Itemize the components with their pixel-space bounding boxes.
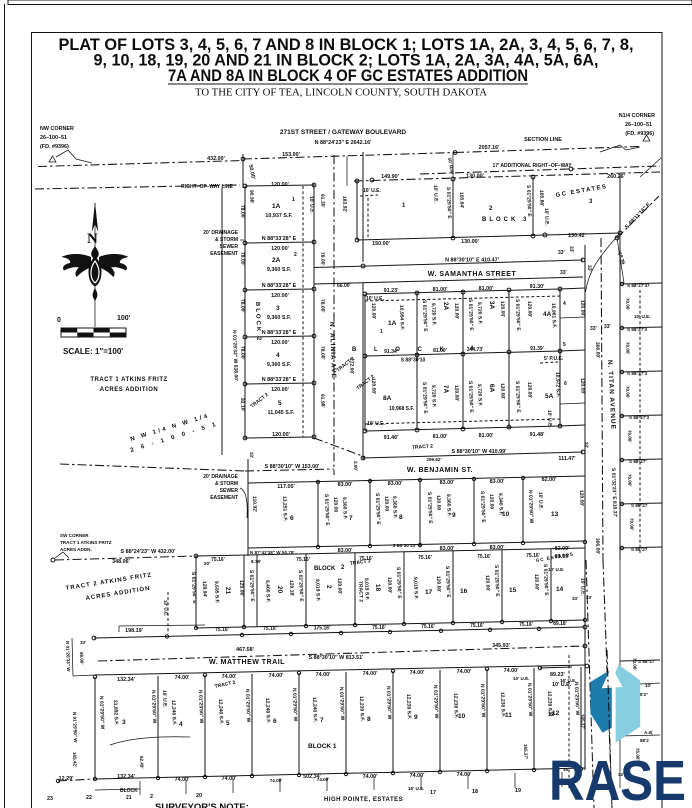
- svg-text:78.00': 78.00': [319, 299, 325, 313]
- svg-text:7: 7: [349, 515, 353, 522]
- svg-text:149.90': 149.90': [381, 174, 399, 180]
- svg-text:ACRES ADDITION: ACRES ADDITION: [85, 586, 151, 602]
- svg-text:S 88°27'37: S 88°27'37: [627, 283, 650, 288]
- svg-text:129.18': 129.18': [288, 580, 295, 597]
- svg-text:N 01°29'50" W: N 01°29'50" W: [98, 696, 105, 730]
- svg-text:TRACT 2: TRACT 2: [349, 558, 371, 567]
- svg-text:26–100–51: 26–100–51: [625, 122, 652, 128]
- svg-text:7A: 7A: [442, 385, 449, 394]
- svg-text:20' DRAINAGE: 20' DRAINAGE: [203, 230, 238, 236]
- svg-text:9,019 S.F.: 9,019 S.F.: [412, 577, 419, 600]
- svg-text:A.0(: A.0(: [644, 730, 653, 735]
- svg-text:81.00': 81.00': [433, 287, 448, 293]
- svg-text:10' U.E.: 10' U.E.: [546, 410, 553, 429]
- svg-text:ACRES ADDITION: ACRES ADDITION: [100, 387, 158, 393]
- svg-text:B L O C K: B L O C K: [352, 347, 452, 353]
- svg-text:SURVEYOR'S NOTE:: SURVEYOR'S NOTE:: [155, 802, 249, 808]
- svg-text:9,720 S.F.: 9,720 S.F.: [430, 303, 437, 326]
- svg-text:9,019 S.F.: 9,019 S.F.: [363, 578, 370, 601]
- svg-text:120.00': 120.00': [272, 432, 290, 438]
- svg-text:10' U.E.: 10' U.E.: [367, 421, 385, 427]
- svg-text:RIGHT–OF–WAY LINE: RIGHT–OF–WAY LINE: [181, 184, 233, 190]
- svg-text:17: 17: [430, 790, 436, 796]
- svg-text:BLOCK 1: BLOCK 1: [308, 743, 337, 750]
- svg-text:6: 6: [564, 381, 567, 387]
- svg-text:14: 14: [556, 586, 564, 593]
- svg-text:S 01°29'50" E: S 01°29'50" E: [374, 493, 381, 526]
- svg-text:10': 10': [645, 683, 651, 688]
- svg-text:23: 23: [47, 796, 53, 802]
- svg-text:91.30': 91.30': [530, 284, 545, 290]
- svg-text:33': 33': [249, 452, 254, 458]
- svg-text:432.00': 432.00': [207, 156, 225, 162]
- svg-text:5: 5: [278, 400, 282, 407]
- svg-text:N 01°29'50" W: N 01°29'50" W: [479, 684, 486, 718]
- svg-text:S 01°29'50" E: S 01°29'50" E: [395, 567, 402, 600]
- svg-text:5: 5: [226, 720, 230, 727]
- svg-text:5A: 5A: [545, 393, 554, 400]
- svg-text:91.23': 91.23': [384, 288, 399, 294]
- svg-text:70.00': 70.00': [625, 386, 630, 399]
- svg-text:74.00': 74.00': [410, 670, 425, 676]
- svg-text:6: 6: [290, 515, 294, 522]
- svg-text:62.49': 62.49': [139, 756, 144, 769]
- svg-text:75.16': 75.16': [372, 625, 386, 631]
- svg-text:70.00': 70.00': [627, 430, 632, 443]
- svg-text:74.00': 74.00': [317, 777, 330, 782]
- svg-text:NW CORNER: NW CORNER: [40, 126, 74, 132]
- svg-text:S 88°24'23" W 432.00': S 88°24'23" W 432.00': [121, 549, 176, 555]
- svg-text:1A: 1A: [272, 203, 281, 210]
- svg-text:TRACT 2: TRACT 2: [357, 581, 364, 603]
- svg-text:70.00': 70.00': [632, 658, 637, 671]
- svg-text:467.58': 467.58': [236, 647, 254, 653]
- svg-text:33': 33': [560, 270, 567, 276]
- svg-text:78.00': 78.00': [239, 299, 245, 313]
- svg-text:10' U.E.: 10' U.E.: [366, 296, 384, 302]
- svg-text:6A: 6A: [488, 384, 495, 393]
- svg-text:74.00': 74.00': [175, 675, 190, 681]
- svg-text:120.00: 120.00: [435, 495, 442, 511]
- svg-text:S 01°29'50" E: S 01°29'50" E: [525, 185, 532, 218]
- svg-text:74.00': 74.00': [457, 772, 472, 778]
- svg-text:9,720 S.F.: 9,720 S.F.: [476, 302, 483, 325]
- svg-text:10' U.E.: 10' U.E.: [548, 567, 564, 572]
- svg-text:& STORM: & STORM: [215, 237, 238, 243]
- svg-text:83.00': 83.00': [440, 480, 455, 486]
- svg-text:10' U.E.: 10' U.E.: [308, 196, 315, 215]
- svg-text:S 88°27: S 88°27: [631, 503, 648, 508]
- svg-text:10,937 S.F.: 10,937 S.F.: [265, 213, 293, 219]
- svg-text:120.00': 120.00': [336, 578, 343, 595]
- svg-text:S 01°29'50" E: S 01°29'50" E: [479, 491, 486, 524]
- svg-text:9,360 S.F.: 9,360 S.F.: [445, 494, 452, 517]
- svg-text:10,954 S.F.: 10,954 S.F.: [398, 305, 405, 331]
- svg-text:10' U.E.: 10' U.E.: [363, 188, 381, 194]
- svg-text:90.98': 90.98': [248, 190, 254, 204]
- svg-text:16: 16: [460, 588, 468, 595]
- svg-text:100': 100': [117, 315, 131, 322]
- svg-text:75.16': 75.16': [421, 624, 435, 630]
- svg-text:TRACT 1 ATKINS FRITZ: TRACT 1 ATKINS FRITZ: [60, 540, 112, 545]
- svg-text:74.00': 74.00': [270, 778, 283, 783]
- svg-text:11,045 S.F.: 11,045 S.F.: [268, 410, 295, 416]
- svg-text:2A: 2A: [442, 302, 449, 311]
- svg-text:S 01°29'50" E: S 01°29'50" E: [514, 381, 521, 414]
- svg-text:120.00': 120.00': [453, 303, 460, 320]
- svg-text:5: 5: [563, 342, 566, 348]
- svg-text:75.16': 75.16': [296, 557, 310, 563]
- svg-text:75.16': 75.16': [211, 557, 225, 563]
- svg-text:120.00': 120.00': [533, 574, 540, 591]
- svg-text:16' U.E.: 16' U.E.: [161, 690, 168, 709]
- svg-text:TRACT 2: TRACT 2: [412, 444, 434, 451]
- svg-text:198.19': 198.19': [125, 628, 143, 634]
- svg-text:128.94': 128.94': [201, 581, 208, 598]
- svg-text:10,972 S.F.: 10,972 S.F.: [554, 372, 561, 398]
- svg-text:S 88°27: S 88°27: [638, 659, 655, 664]
- svg-text:W. SAMANTHA STREET: W. SAMANTHA STREET: [428, 271, 517, 278]
- svg-text:20: 20: [196, 793, 202, 799]
- svg-text:& STORM: & STORM: [215, 481, 238, 487]
- svg-text:33': 33': [568, 246, 574, 253]
- svg-text:N 01°29'50" W: N 01°29'50" W: [527, 490, 534, 524]
- svg-text:S 01°29'50" E: S 01°29'50" E: [493, 565, 500, 598]
- svg-text:20: 20: [276, 586, 283, 594]
- svg-text:N 01°29'50" W: N 01°29'50" W: [338, 687, 345, 721]
- svg-text:4: 4: [563, 301, 566, 307]
- svg-text:EASEMENT: EASEMENT: [210, 495, 238, 501]
- svg-text:12,239 S.F.: 12,239 S.F.: [499, 692, 506, 718]
- svg-text:2: 2: [294, 252, 297, 258]
- svg-text:12,239 S.F.: 12,239 S.F.: [405, 694, 412, 720]
- svg-text:132.34': 132.34': [117, 677, 135, 683]
- svg-text:N 01°29'50" W: N 01°29'50" W: [573, 682, 580, 716]
- svg-text:9,695 S.F.: 9,695 S.F.: [213, 581, 220, 604]
- svg-text:165.37': 165.37': [580, 714, 586, 729]
- svg-text:7: 7: [320, 717, 324, 724]
- svg-text:117.05': 117.05': [277, 484, 294, 490]
- svg-text:22: 22: [86, 795, 92, 801]
- svg-text:89.23': 89.23': [550, 672, 565, 678]
- svg-text:70.00': 70.00': [627, 474, 632, 487]
- svg-text:78.00': 78.00': [319, 346, 325, 360]
- svg-text:3A: 3A: [488, 301, 495, 310]
- svg-text:2057.16': 2057.16': [479, 145, 500, 151]
- svg-text:S 01°29'50" E: S 01°29'50" E: [445, 187, 452, 220]
- svg-text:74.00': 74.00': [457, 669, 472, 675]
- svg-text:S 01°29'50" E: S 01°29'50" E: [542, 564, 549, 597]
- svg-text:21: 21: [126, 795, 132, 801]
- svg-text:120.00': 120.00': [386, 577, 393, 594]
- svg-text:S 88°27'3: S 88°27'3: [629, 415, 649, 420]
- svg-text:75.16': 75.16': [477, 554, 491, 560]
- svg-text:91.98': 91.98': [319, 394, 325, 408]
- svg-text:120.00': 120.00': [579, 378, 586, 395]
- svg-text:2A: 2A: [272, 257, 281, 264]
- svg-text:33': 33': [558, 250, 565, 256]
- svg-text:74.00': 74.00': [316, 672, 331, 678]
- svg-text:82.00': 82.00': [542, 477, 557, 483]
- svg-text:S 01°29'50" E: S 01°29'50" E: [426, 492, 433, 525]
- svg-text:10' U.E.: 10' U.E.: [543, 208, 550, 227]
- svg-text:3: 3: [589, 199, 593, 205]
- svg-text:105.86': 105.86': [538, 190, 545, 207]
- svg-text:10' U.E.: 10' U.E.: [432, 185, 439, 204]
- svg-text:3: 3: [276, 305, 280, 312]
- svg-text:130.42': 130.42': [568, 233, 586, 239]
- svg-text:165.37': 165.37': [523, 744, 529, 759]
- svg-text:33': 33': [586, 595, 592, 600]
- svg-text:TRACT 1 ATKINS FRITZ: TRACT 1 ATKINS FRITZ: [90, 377, 167, 383]
- svg-text:N 01°29'50" W: N 01°29'50" W: [385, 686, 392, 720]
- svg-text:N 88°33'28" E: N 88°33'28" E: [262, 377, 297, 383]
- svg-text:N 88°33'28" E: N 88°33'28" E: [262, 330, 297, 336]
- svg-text:HIGH POINTE, ESTATES: HIGH POINTE, ESTATES: [324, 797, 403, 803]
- svg-text:10' U.E.: 10' U.E.: [537, 492, 544, 511]
- svg-text:9,720 S.F.: 9,720 S.F.: [476, 384, 483, 407]
- svg-text:12,240 S.F.: 12,240 S.F.: [264, 698, 271, 724]
- svg-text:1: 1: [380, 329, 383, 335]
- svg-text:1: 1: [292, 197, 295, 203]
- svg-text:S 01°29'50" E: S 01°29'50" E: [248, 570, 255, 603]
- svg-text:S 88°30'10" W 813.51': S 88°30'10" W 813.51': [309, 655, 364, 661]
- svg-text:BLOCK 3: BLOCK 3: [482, 217, 529, 223]
- svg-text:12,240 S.F.: 12,240 S.F.: [311, 697, 318, 723]
- svg-text:70.00': 70.00': [625, 342, 630, 355]
- svg-text:N 01°26'32" W 638.00': N 01°26'32" W 638.00': [231, 330, 239, 381]
- svg-text:91.46': 91.46': [384, 435, 399, 441]
- svg-text:N 01°29'50" W: N 01°29'50" W: [72, 712, 78, 743]
- svg-text:SEWER: SEWER: [220, 488, 239, 494]
- svg-text:33': 33': [80, 640, 86, 645]
- svg-text:120.00': 120.00': [271, 293, 289, 299]
- svg-text:W. BENJAMIN ST.: W. BENJAMIN ST.: [407, 467, 473, 474]
- svg-text:120.00': 120.00': [271, 340, 289, 346]
- svg-text:83.00': 83.00': [338, 482, 353, 488]
- svg-text:1A: 1A: [388, 320, 397, 327]
- svg-text:TRACT 2: TRACT 2: [214, 680, 236, 690]
- svg-text:S 88°27'3: S 88°27'3: [627, 371, 647, 376]
- svg-text:130.00': 130.00': [466, 174, 484, 180]
- svg-text:1: 1: [402, 203, 406, 209]
- svg-text:153.00': 153.00': [282, 152, 300, 158]
- svg-text:S 01°29'50" E: S 01°29'50" E: [297, 570, 304, 603]
- svg-text:3.00': 3.00': [353, 461, 358, 471]
- svg-text:17' ADDITIONAL RIGHT–OF–WAY: 17' ADDITIONAL RIGHT–OF–WAY: [492, 163, 572, 169]
- svg-text:S 88°27'3: S 88°27'3: [627, 327, 647, 332]
- svg-text:N 01°29'50" W: N 01°29'50" W: [526, 683, 533, 717]
- svg-text:9,360 S.F.: 9,360 S.F.: [267, 315, 292, 321]
- svg-text:81.00': 81.00': [479, 286, 494, 292]
- svg-text:20': 20': [204, 561, 210, 566]
- svg-text:10' U.E.: 10' U.E.: [163, 600, 169, 617]
- svg-text:89.18': 89.18': [553, 621, 567, 627]
- svg-text:2: 2: [150, 794, 153, 800]
- svg-text:10' U.E.: 10' U.E.: [552, 682, 572, 688]
- svg-text:78.00': 78.00': [239, 205, 245, 219]
- svg-text:18: 18: [472, 789, 478, 795]
- svg-text:33': 33': [604, 324, 611, 330]
- svg-text:9,720 S.F.: 9,720 S.F.: [430, 385, 437, 408]
- svg-text:120.00': 120.00': [271, 387, 289, 393]
- svg-text:TRACT 2: TRACT 2: [250, 392, 271, 410]
- svg-text:8.78': 8.78': [251, 559, 261, 564]
- svg-text:S 88°27: S 88°27: [631, 547, 648, 552]
- svg-text:74.00': 74.00': [363, 671, 378, 677]
- svg-text:2: 2: [341, 565, 345, 571]
- svg-text:66.00': 66.00': [79, 652, 84, 665]
- svg-text:83.00': 83.00': [388, 481, 403, 487]
- svg-text:S 88°27': S 88°27': [629, 459, 647, 464]
- svg-text:271ST STREET / GATEWAY BOULEVA: 271ST STREET / GATEWAY BOULEVARD: [280, 129, 406, 136]
- svg-text:66.00': 66.00': [337, 283, 351, 289]
- svg-text:(FD. #9396): (FD. #9396): [40, 144, 69, 150]
- svg-text:S 01°29'50" E: S 01°29'50" E: [514, 299, 521, 332]
- svg-text:120.00': 120.00': [271, 182, 289, 188]
- svg-text:299.52': 299.52': [426, 457, 441, 462]
- svg-text:92.10': 92.10': [239, 398, 245, 412]
- svg-text:S 01°29'50" E: S 01°29'50" E: [467, 299, 474, 332]
- svg-text:120.00: 120.00: [332, 497, 339, 513]
- svg-text:120.00': 120.00': [578, 490, 585, 507]
- svg-text:75.16': 75.16': [519, 622, 533, 628]
- svg-text:S 01°29'50" E: S 01°29'50" E: [444, 566, 451, 599]
- svg-text:0: 0: [57, 317, 61, 324]
- svg-text:306.00': 306.00': [594, 538, 601, 555]
- svg-text:74.00': 74.00': [175, 777, 190, 783]
- svg-text:120.00': 120.00': [370, 303, 377, 320]
- svg-text:130.00': 130.00': [461, 239, 479, 245]
- svg-text:75.16': 75.16': [263, 626, 277, 632]
- svg-text:4: 4: [179, 721, 183, 728]
- svg-text:9: 9: [414, 714, 418, 721]
- svg-text:16' U.E.: 16' U.E.: [408, 786, 424, 791]
- svg-text:2: 2: [325, 585, 332, 589]
- svg-text:4: 4: [276, 352, 280, 359]
- svg-text:N. TITAN AVENUE: N. TITAN AVENUE: [606, 360, 617, 430]
- svg-text:10' U.E.: 10' U.E.: [579, 578, 586, 597]
- svg-text:33': 33': [572, 596, 578, 601]
- svg-text:12,240 S.F.: 12,240 S.F.: [170, 700, 177, 726]
- svg-text:348.06': 348.06': [112, 559, 130, 565]
- svg-text:26–100–51: 26–100–51: [40, 135, 67, 141]
- svg-text:10,961 S.F.: 10,961 S.F.: [550, 303, 557, 329]
- svg-text:132.34': 132.34': [117, 774, 135, 780]
- svg-text:ACRES ADDN.: ACRES ADDN.: [60, 547, 92, 552]
- svg-text:8'2": 8'2": [640, 692, 648, 697]
- svg-text:105.64': 105.64': [458, 192, 465, 209]
- svg-text:12,239 S.F.: 12,239 S.F.: [452, 693, 459, 719]
- svg-text:12,240 S.F.: 12,240 S.F.: [217, 699, 224, 725]
- svg-text:70.00': 70.00': [625, 298, 630, 311]
- svg-text:SW CORNER: SW CORNER: [60, 533, 89, 538]
- svg-text:150.00': 150.00': [372, 241, 390, 247]
- svg-text:33': 33': [584, 442, 589, 448]
- svg-text:9,340 S.F.: 9,340 S.F.: [497, 493, 504, 516]
- svg-text:83.00': 83.00': [490, 479, 505, 485]
- svg-text:120.00: 120.00: [488, 494, 495, 510]
- svg-text:260.26': 260.26': [607, 174, 625, 180]
- svg-text:91.30': 91.30': [319, 194, 325, 208]
- svg-text:120.00': 120.00': [499, 301, 506, 318]
- svg-text:74.00': 74.00': [504, 668, 519, 674]
- svg-text:21: 21: [224, 587, 231, 595]
- svg-text:20' DRAINAGE: 20' DRAINAGE: [203, 474, 238, 480]
- svg-text:18: 18: [374, 584, 381, 592]
- svg-text:SECTION LINE: SECTION LINE: [524, 137, 562, 143]
- svg-text:N: N: [87, 231, 98, 247]
- svg-text:70.00': 70.00': [629, 518, 634, 531]
- svg-text:74.00': 74.00': [222, 776, 237, 782]
- svg-text:75.16': 75.16': [470, 623, 484, 629]
- svg-text:S 88°30'10" E: S 88°30'10" E: [392, 543, 421, 548]
- svg-text:120.00': 120.00': [484, 575, 491, 592]
- svg-text:N 01°29'50" W: N 01°29'50" W: [432, 685, 439, 719]
- svg-text:74.00': 74.00': [410, 773, 425, 779]
- svg-text:120.00': 120.00': [526, 301, 533, 318]
- svg-text:9,360 S.F.: 9,360 S.F.: [267, 267, 292, 273]
- svg-text:33': 33': [586, 265, 592, 272]
- svg-text:N 01°29'50" W: N 01°29'50" W: [291, 688, 298, 722]
- svg-text:17: 17: [425, 589, 433, 596]
- svg-text:9,019 S.F.: 9,019 S.F.: [314, 579, 321, 602]
- svg-text:12,239 S.F.: 12,239 S.F.: [358, 696, 365, 722]
- svg-text:N 88°33'28" E: N 88°33'28" E: [262, 236, 297, 242]
- svg-text:33': 33': [590, 326, 597, 332]
- svg-text:GC ESTATES: GC ESTATES: [555, 184, 608, 199]
- svg-text:8: 8: [399, 514, 403, 521]
- svg-text:19: 19: [515, 788, 521, 794]
- svg-text:N 88°24'23" E 2642.16': N 88°24'23" E 2642.16': [315, 140, 372, 146]
- svg-text:W. MATTHEW TRAIL: W. MATTHEW TRAIL: [209, 659, 285, 666]
- svg-text:S 01°32'23" E 810.37': S 01°32'23" E 810.37': [610, 468, 618, 518]
- svg-text:S 01°29'50" E: S 01°29'50" E: [467, 381, 474, 414]
- svg-text:(FD. #9396): (FD. #9396): [625, 131, 654, 137]
- svg-text:RASE: RASE: [549, 750, 686, 808]
- svg-text:183.92': 183.92': [341, 196, 348, 213]
- svg-text:8A: 8A: [383, 395, 392, 402]
- svg-text:74.00': 74.00': [363, 774, 378, 780]
- svg-text:165.42': 165.42': [72, 752, 78, 767]
- svg-text:7A AND 8A IN BLOCK 4 OF GC EST: 7A AND 8A IN BLOCK 4 OF GC ESTATES ADDIT…: [168, 66, 528, 85]
- svg-text:120.00: 120.00: [383, 496, 390, 512]
- svg-text:SCALE: 1"=100': SCALE: 1"=100': [63, 347, 123, 356]
- svg-text:120.00': 120.00': [579, 300, 586, 317]
- svg-text:13: 13: [551, 511, 559, 518]
- svg-text:78.00': 78.00': [239, 346, 245, 360]
- svg-text:175.16': 175.16': [314, 626, 330, 632]
- svg-text:S 49°11'16" E: S 49°11'16" E: [624, 202, 652, 231]
- svg-text:S 01°29'50" E: S 01°29'50" E: [190, 572, 197, 605]
- svg-text:S 01°29'50" E: S 01°29'50" E: [421, 300, 428, 333]
- svg-text:91.39': 91.39': [530, 346, 544, 352]
- svg-text:S 01°29'50" E: S 01°29'50" E: [323, 494, 330, 527]
- svg-text:2: 2: [489, 206, 493, 212]
- svg-text:BLOCK: BLOCK: [120, 788, 138, 794]
- svg-text:91.48': 91.48': [530, 432, 545, 438]
- svg-text:S 01°29'50" E: S 01°29'50" E: [421, 382, 428, 415]
- svg-text:N 01°29'50" W: N 01°29'50" W: [244, 689, 251, 723]
- svg-text:TO THE CITY OF TEA, LINCOLN CO: TO THE CITY OF TEA, LINCOLN COUNTY, SOUT…: [195, 87, 487, 99]
- svg-text:120.00': 120.00': [499, 383, 506, 400]
- svg-text:88'2: 88'2: [640, 738, 649, 743]
- svg-text:81.00': 81.00': [433, 434, 448, 440]
- svg-text:78.00': 78.00': [319, 252, 325, 266]
- svg-text:74.00': 74.00': [269, 673, 284, 679]
- svg-text:EASEMENT: EASEMENT: [210, 251, 238, 257]
- svg-text:75.16': 75.16': [418, 555, 432, 561]
